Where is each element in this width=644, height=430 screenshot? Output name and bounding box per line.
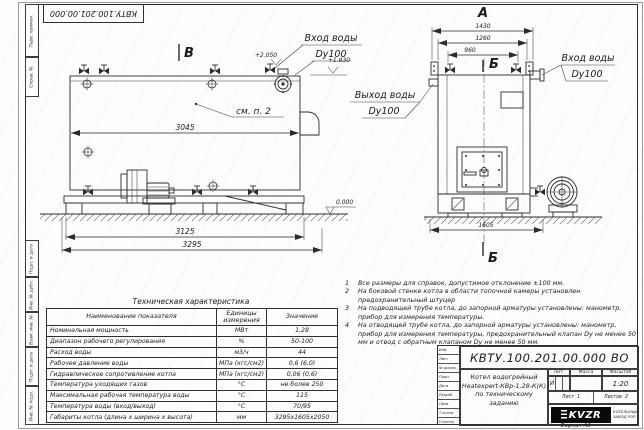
see-note: см. п. 2 bbox=[236, 107, 271, 117]
table-row: Рабочее давление водыМПа (кгс/см2)0,6 (6… bbox=[47, 358, 338, 369]
furnace-door bbox=[457, 147, 507, 192]
tech-table-title: Техническая характеристика bbox=[46, 297, 336, 306]
side-inlet-label: Вход воды bbox=[304, 33, 358, 44]
outlet-nozzle bbox=[429, 79, 438, 86]
notes-list: 1Все размеры для справок, допустимое отк… bbox=[345, 279, 637, 347]
mass-label: Масса bbox=[570, 369, 602, 376]
title-block-product: Котел водогрейный Heatexpert-КВр-1,28-К(… bbox=[460, 369, 548, 426]
dim-3125: 3125 bbox=[175, 227, 194, 236]
front-outlet-label: Выход воды bbox=[355, 90, 416, 101]
dim-1260: 1260 bbox=[475, 35, 490, 42]
mass-value bbox=[570, 376, 602, 391]
note-item: 4На отводящей трубе котла, до запорной а… bbox=[345, 321, 637, 346]
title-block: Изм. Лист № докум. Подп. Дата Разраб. Пр… bbox=[437, 345, 638, 425]
inlet-flange-side bbox=[278, 69, 288, 74]
side-view: 3045 3125 3295 В см. п. 2 Вход воды Dy10… bbox=[40, 33, 362, 253]
lit-label: Лит. bbox=[548, 369, 570, 376]
scale-value: 1:20 bbox=[602, 376, 639, 391]
lit-value-cells: И bbox=[548, 376, 570, 391]
drawing-sheet: КВТУ.100.201.00.000 ВО Перв. примен. Спр… bbox=[0, 0, 644, 430]
scale-label: Масштаб bbox=[602, 369, 639, 376]
inlet-nozzle-circle bbox=[274, 75, 292, 93]
skid-rail bbox=[64, 196, 304, 203]
valve-icon bbox=[265, 64, 275, 73]
section-marker-b-bottom: Б bbox=[488, 251, 498, 266]
view-marker-v: В bbox=[184, 46, 194, 61]
blower-fan bbox=[530, 176, 578, 217]
dim-960: 960 bbox=[464, 47, 476, 54]
table-row: Гидравлическое сопротивление котлаМПа (к… bbox=[47, 369, 338, 380]
dim-1605: 1605 bbox=[478, 222, 493, 229]
burner-assembly bbox=[121, 170, 175, 214]
sheet-row: Лист 1 Листов 2 bbox=[548, 391, 639, 404]
valve-icon bbox=[210, 65, 220, 74]
note-item: 3На подводящей трубе котла, до запорной … bbox=[345, 304, 637, 321]
front-outlet-dn: Dy100 bbox=[368, 106, 399, 117]
section-marker-b-top: Б bbox=[489, 57, 499, 72]
inspection-window bbox=[501, 92, 523, 108]
title-block-revision-strip: Изм. Лист № докум. Подп. Дата Разраб. Пр… bbox=[438, 346, 460, 426]
view-marker-a: А bbox=[477, 6, 488, 21]
format-label: Формат А3 bbox=[560, 423, 591, 429]
flue-duct bbox=[300, 112, 319, 135]
valve-icon bbox=[99, 65, 109, 74]
table-row: Номинальная мощностьМВт1,28 bbox=[47, 326, 338, 337]
note-item: 1Все размеры для справок, допустимое отк… bbox=[345, 279, 637, 287]
valve-icon bbox=[79, 65, 89, 74]
table-row: Температура воды (вход/выход)°С70/95 bbox=[47, 401, 338, 412]
elev-zero: 0.000 bbox=[336, 199, 353, 206]
dim-3045: 3045 bbox=[175, 123, 194, 132]
table-row: Температура уходящих газов°Сне более 250 bbox=[47, 379, 338, 390]
dim-3295: 3295 bbox=[182, 240, 201, 249]
dim-1430: 1430 bbox=[475, 23, 490, 30]
tech-table: Наименование показателя Единицы измерени… bbox=[46, 308, 338, 423]
logo-stripes-icon bbox=[561, 410, 567, 420]
table-row: Габариты котла (длина х ширина х высота)… bbox=[47, 412, 338, 423]
table-row: Расход водым3/ч44 bbox=[47, 347, 338, 358]
table-row: Максимальная рабочая температура воды°С1… bbox=[47, 390, 338, 401]
company-name: КОТЕЛЬНЫЙ ЗАВОД РЭП bbox=[613, 410, 638, 419]
front-inlet-dn: Dy100 bbox=[571, 69, 602, 80]
table-row: Диапазон рабочего регулирования%50-100 bbox=[47, 336, 338, 347]
front-inlet-label: Вход воды bbox=[561, 53, 615, 64]
table-header-row: Наименование показателя Единицы измерени… bbox=[47, 309, 338, 326]
kvzr-logo: KVZR bbox=[551, 407, 611, 423]
note-item: 2На боковой стенке котла в области топоч… bbox=[345, 287, 637, 304]
title-block-doc-number: КВТУ.100.201.00.000 ВО bbox=[460, 346, 639, 369]
front-view: А 1430 1260 960 Б Б 1605 Выход воды Dy10… bbox=[350, 6, 615, 266]
elev-2050: +2.050 bbox=[255, 52, 277, 59]
elev-1930: +1.930 bbox=[328, 57, 350, 64]
